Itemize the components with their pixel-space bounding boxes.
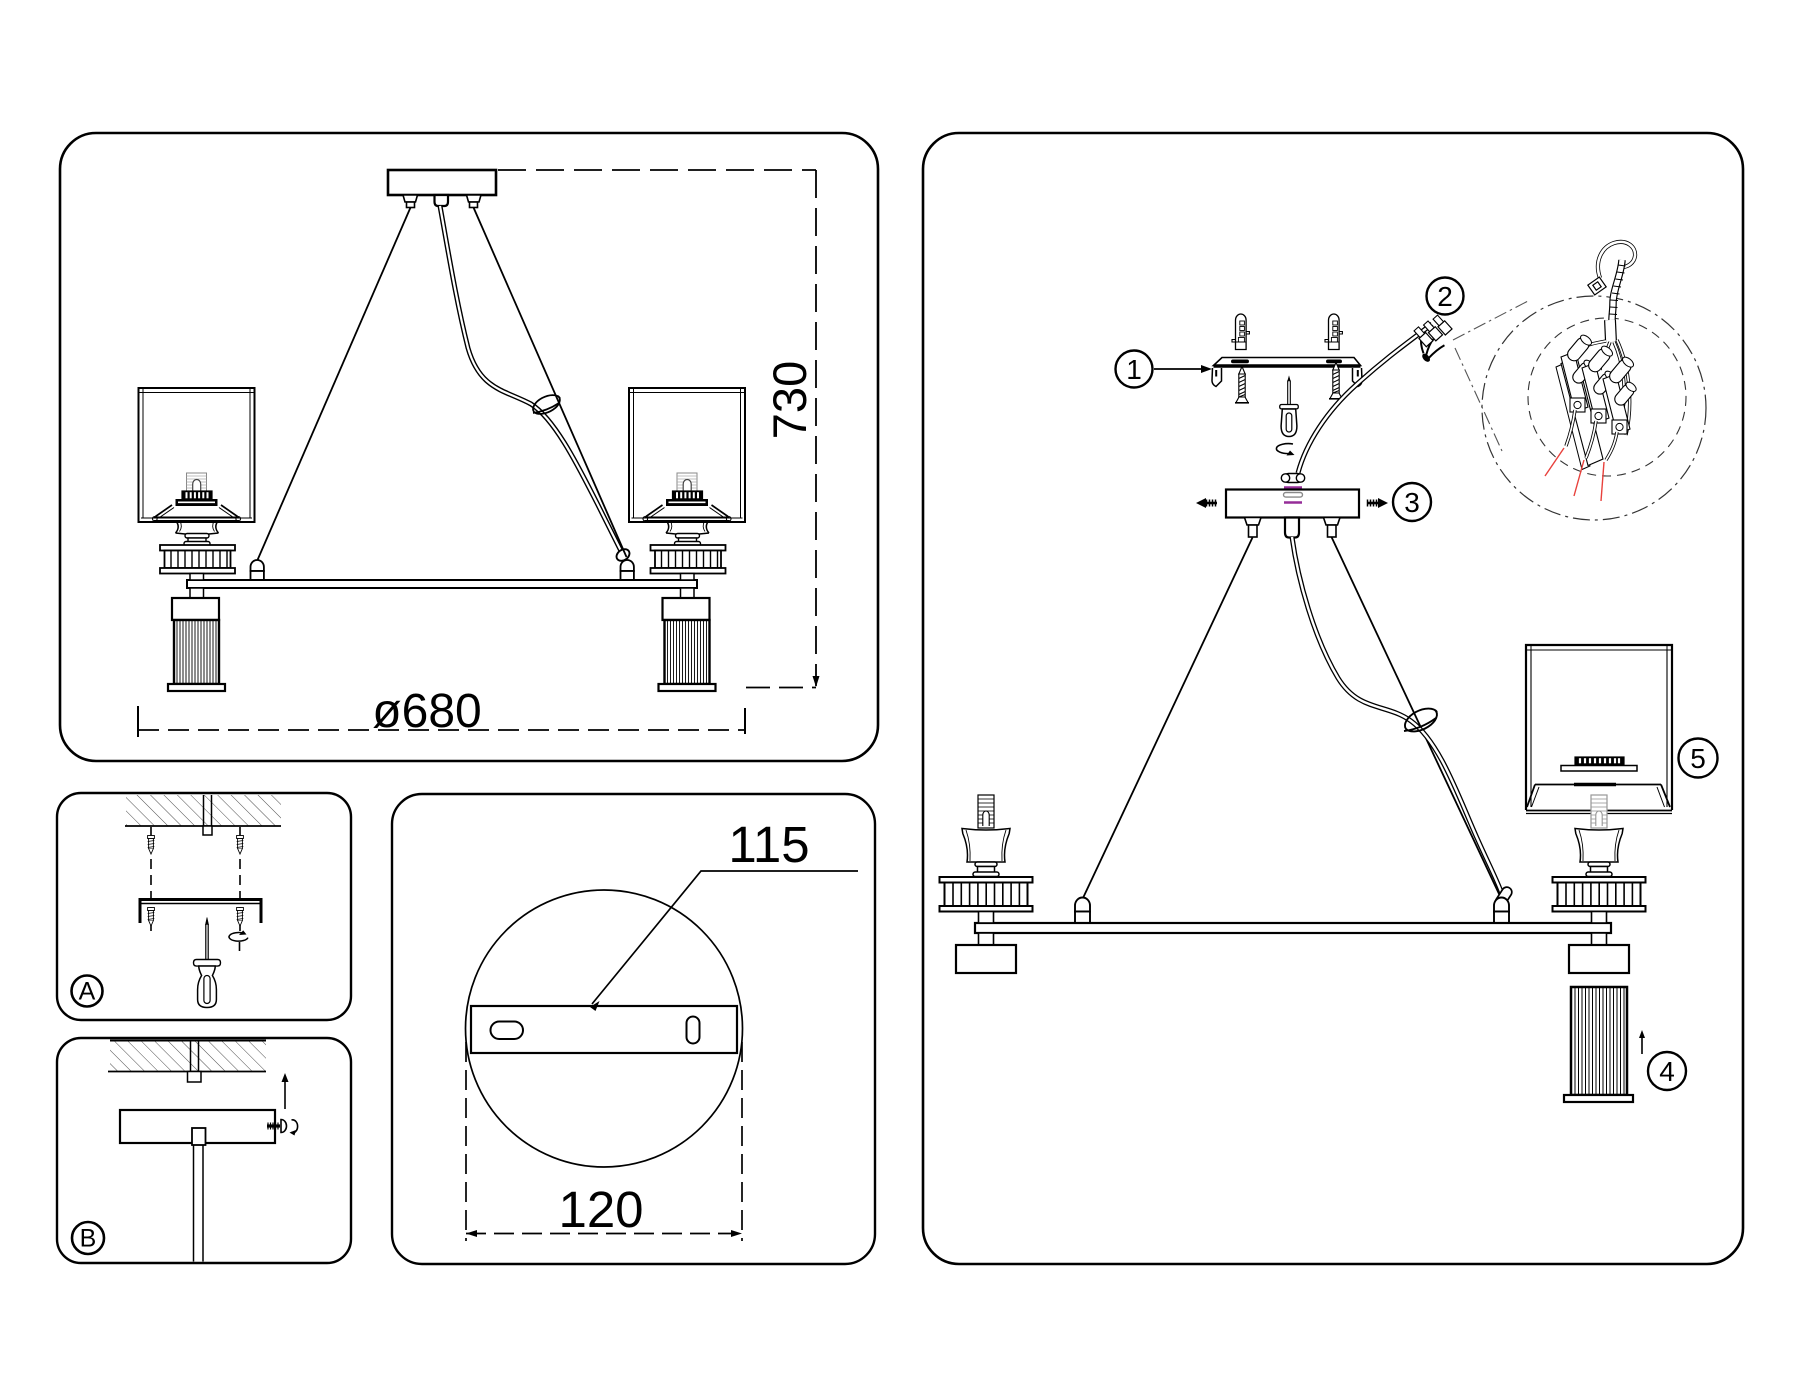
svg-text:5: 5 <box>1690 743 1706 774</box>
svg-text:730: 730 <box>763 361 816 439</box>
svg-text:120: 120 <box>558 1181 643 1238</box>
svg-text:4: 4 <box>1659 1056 1675 1087</box>
svg-text:B: B <box>80 1225 97 1253</box>
svg-text:A: A <box>79 978 96 1006</box>
svg-text:2: 2 <box>1437 281 1453 312</box>
svg-text:ø680: ø680 <box>372 685 481 738</box>
svg-text:3: 3 <box>1404 487 1420 518</box>
svg-text:115: 115 <box>728 816 809 873</box>
svg-text:1: 1 <box>1126 354 1142 385</box>
